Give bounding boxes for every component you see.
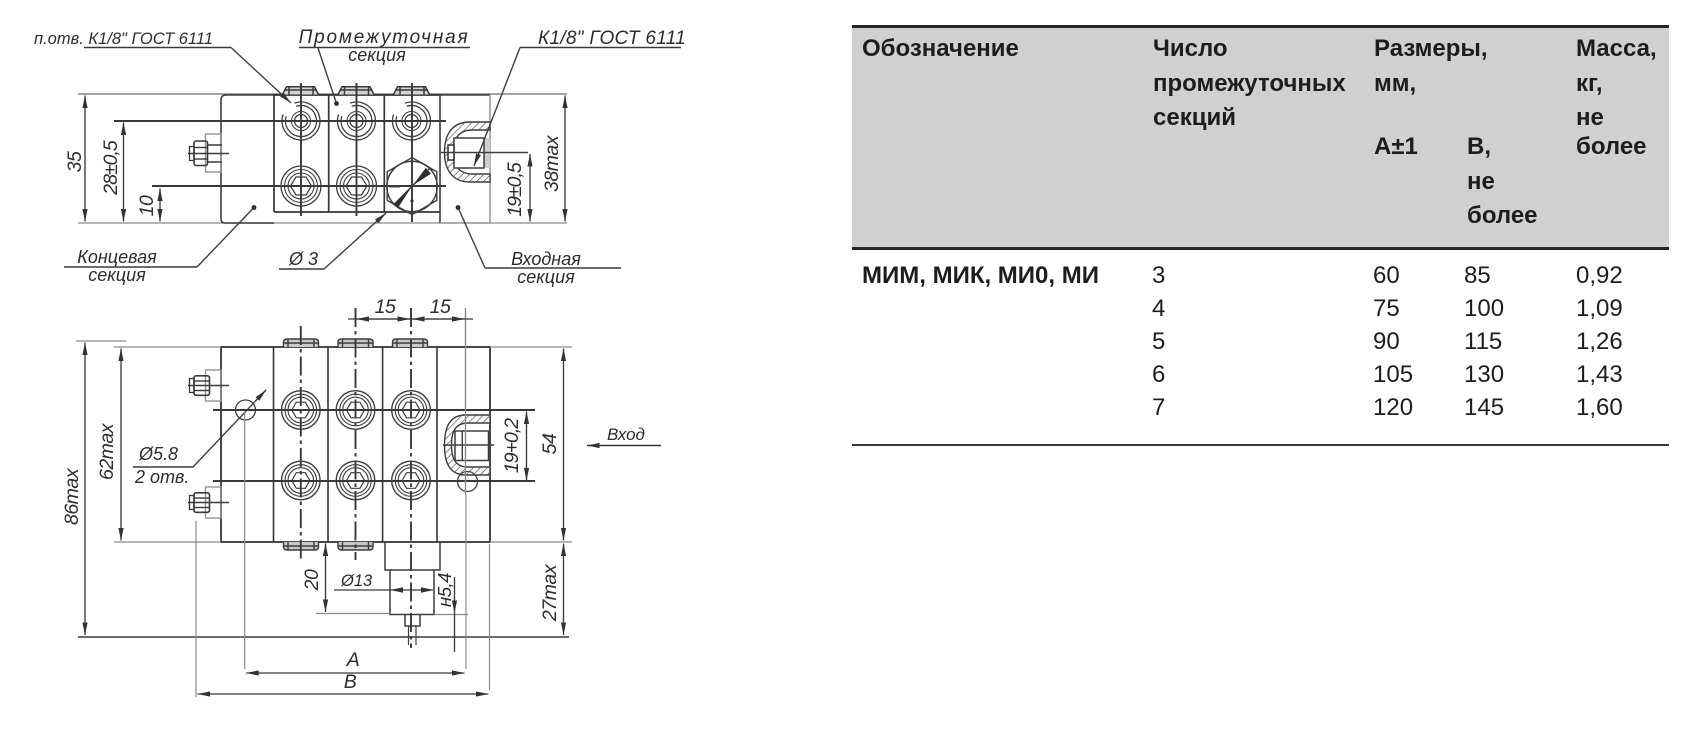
svg-text:35: 35 (64, 151, 86, 172)
svg-text:Входная: Входная (511, 249, 581, 269)
svg-text:секция: секция (517, 267, 575, 287)
svg-text:15: 15 (375, 296, 396, 318)
svg-text:Вход: Вход (607, 425, 645, 444)
svg-text:секция: секция (88, 265, 146, 285)
svg-text:Ø 3: Ø 3 (288, 249, 318, 269)
svg-text:2 отв.: 2 отв. (134, 467, 189, 487)
svg-text:19±0,5: 19±0,5 (504, 162, 526, 217)
svg-text:27max: 27max (539, 563, 561, 622)
svg-text:62max: 62max (96, 422, 118, 480)
svg-text:38max: 38max (541, 134, 563, 192)
svg-text:Концевая: Концевая (77, 247, 157, 267)
svg-text:15: 15 (430, 296, 451, 318)
svg-text:54: 54 (539, 433, 561, 454)
svg-text:19+0,2: 19+0,2 (501, 418, 523, 473)
svg-text:86max: 86max (61, 467, 83, 525)
svg-text:К1/8" ГОСТ 6111: К1/8" ГОСТ 6111 (538, 28, 686, 49)
svg-text:Ø13: Ø13 (340, 572, 373, 590)
svg-text:А: А (346, 649, 360, 671)
svg-text:10: 10 (136, 195, 158, 216)
svg-text:п.отв. К1/8" ГОСТ 6111: п.отв. К1/8" ГОСТ 6111 (34, 30, 213, 48)
svg-text:Ø5.8: Ø5.8 (138, 444, 178, 464)
svg-text:20: 20 (301, 569, 323, 591)
svg-text:н5,4: н5,4 (434, 573, 455, 607)
svg-text:В: В (344, 671, 357, 693)
svg-text:28±0,5: 28±0,5 (100, 140, 122, 196)
